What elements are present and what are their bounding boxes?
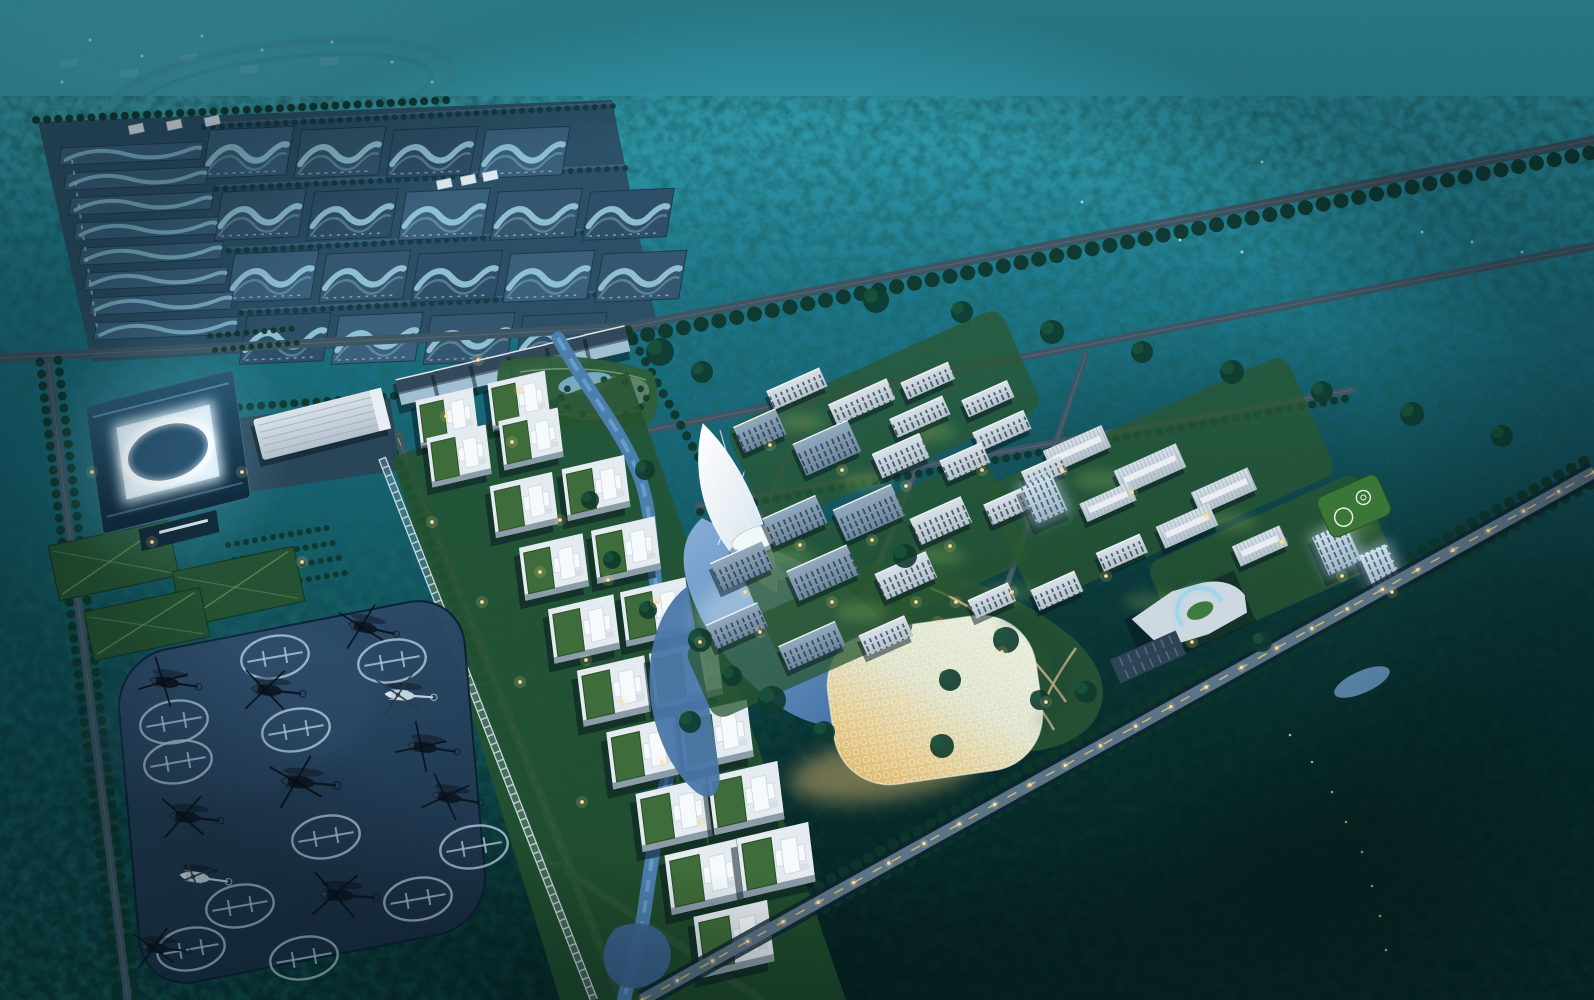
warm-light [1130,490,1134,494]
tree-clump-highlight [1221,361,1234,374]
lab-green-roof [611,732,644,782]
tree-clump-highlight [636,461,647,472]
trail-light [1371,885,1374,888]
warm-light [914,600,918,604]
street-light [1310,627,1314,631]
warm-light [480,600,484,604]
street-light [1028,783,1032,787]
cool-light [1421,231,1424,234]
warm-light [300,560,304,564]
warm-light [558,518,562,522]
warm-light [1280,540,1284,544]
warm-light [954,600,958,604]
wave-pond [214,188,306,240]
cool-light [61,81,64,84]
warm-light [1010,590,1014,594]
tree-clump-highlight [1076,682,1088,694]
trail-light [1361,851,1364,854]
warm-light [870,538,874,542]
tree-clump-highlight [940,670,952,682]
far-city-block [120,68,139,78]
tree-clump-highlight [931,735,944,748]
wave-pond [398,188,490,240]
street-light [1451,548,1455,552]
street-light [887,861,891,865]
warm-light [904,484,908,488]
wave-pond [411,250,503,302]
wave-pond [227,250,319,302]
plaza-tree [637,385,644,392]
warm-light [1340,574,1344,578]
warm-light [758,630,762,634]
tree-clump-highlight [723,667,734,678]
wave-pond [478,126,570,178]
tree-clump-highlight [647,339,662,354]
warm-light [538,570,542,574]
heli-tail-boom [353,896,375,898]
trail-light [1379,915,1382,918]
tree-clump-highlight [894,545,907,558]
tree-clump-highlight [1253,633,1264,644]
plaza-tree [643,395,650,402]
street-light [1134,724,1138,728]
cool-light [201,35,204,38]
tree-clump-highlight [1312,382,1324,394]
tree-clump-highlight [994,628,1008,642]
cool-light [331,41,334,44]
warm-light [654,600,658,604]
lab-green-roof [641,793,675,844]
trail-light [1311,761,1314,764]
tree-clump-highlight [1031,691,1042,702]
cool-light [1241,251,1244,254]
cool-light [391,61,394,64]
cool-light [1261,161,1264,164]
wave-pond [386,126,478,178]
cool-light [141,55,144,58]
warm-light [700,820,704,824]
trail-light [1385,949,1388,952]
lab-green-roof [494,485,524,531]
warm-light [936,620,940,624]
warm-light [430,520,434,524]
warm-light [840,468,844,472]
street-light [1169,705,1173,709]
lab-green-roof [582,670,615,719]
tree-clump-highlight [759,687,774,702]
warm-light [768,443,772,447]
wave-pond [319,250,411,302]
trail-light [1331,791,1334,794]
trail-light [1345,821,1348,824]
warm-light [798,543,802,547]
street-light [675,979,679,983]
tree-clump-highlight [692,362,704,374]
street-light [1486,529,1490,533]
street-light [1204,685,1208,689]
lab-green-roof [742,838,777,891]
warm-light [444,414,448,418]
street-light [711,959,715,963]
tree-clump-highlight [581,492,591,502]
tree-clump-highlight [1401,403,1414,416]
tree-clump-highlight [1041,321,1054,334]
warm-light [240,470,244,474]
street-light [1381,588,1385,592]
tree-clump-highlight [1492,426,1504,438]
lab-green-roof [670,855,705,908]
warm-light [518,680,522,684]
warm-light [1044,700,1048,704]
street-light [922,842,926,846]
warm-light [606,578,610,582]
warm-light [900,700,904,704]
warm-light [948,544,952,548]
warm-light [518,388,522,392]
warm-light [90,470,94,474]
warm-light [150,540,154,544]
street-light [781,920,785,924]
warm-light [1390,590,1394,594]
heli-tail-boom [414,696,433,697]
street-light [1275,646,1279,650]
street-light [1345,607,1349,611]
plaza-tree [564,385,571,392]
lawn-glow [836,603,888,621]
cool-light [1521,251,1524,254]
far-city-block [60,58,79,68]
cool-light [1179,239,1182,242]
rendering-canvas [0,0,1594,1000]
tree-clump-highlight [639,602,649,612]
cool-light [1081,201,1084,204]
cool-light [1471,241,1474,244]
warm-light [660,760,664,764]
wave-pond [294,126,386,178]
cool-light [431,81,434,84]
cool-light [261,49,264,52]
warm-light [1190,640,1194,644]
wave-pond [202,126,294,178]
tree-clump-highlight [603,552,613,562]
street-light [746,940,750,944]
street-light [1416,568,1420,572]
street-light [852,881,856,885]
warm-light [1204,514,1208,518]
warm-light [584,658,588,662]
tree-clump-highlight [680,712,692,724]
warm-light [830,600,834,604]
wave-pond [595,250,687,302]
tree-clump-highlight [864,288,878,302]
street-light [993,803,997,807]
wave-pond [503,250,595,302]
wave-pond [306,188,398,240]
warm-light [1104,574,1108,578]
lab-green-roof [553,609,585,657]
tree-clump-highlight [814,722,826,734]
street-light [1522,509,1526,513]
street-light [1063,764,1067,768]
street-light [958,822,962,826]
far-city-block [240,64,259,74]
far-city-block [320,56,339,66]
lab-green-roof [431,437,460,480]
warm-light [1000,650,1004,654]
street-light [1240,666,1244,670]
warm-light [476,358,480,362]
street-light [1557,490,1561,494]
wave-pond [582,188,674,240]
warm-light [580,800,584,804]
street-light [816,900,820,904]
tree-clump-highlight [1132,342,1144,354]
warm-light [743,590,747,594]
warm-light [620,700,624,704]
warm-light [980,468,984,472]
aerial-campus-rendering [0,0,1594,1000]
warm-light [1060,468,1064,472]
cool-light [89,39,92,42]
tree-clump-highlight [952,302,964,314]
warm-light [698,640,702,644]
trail-light [1289,734,1292,737]
wave-pond [490,188,582,240]
street-light [1099,744,1103,748]
warm-light [510,440,514,444]
